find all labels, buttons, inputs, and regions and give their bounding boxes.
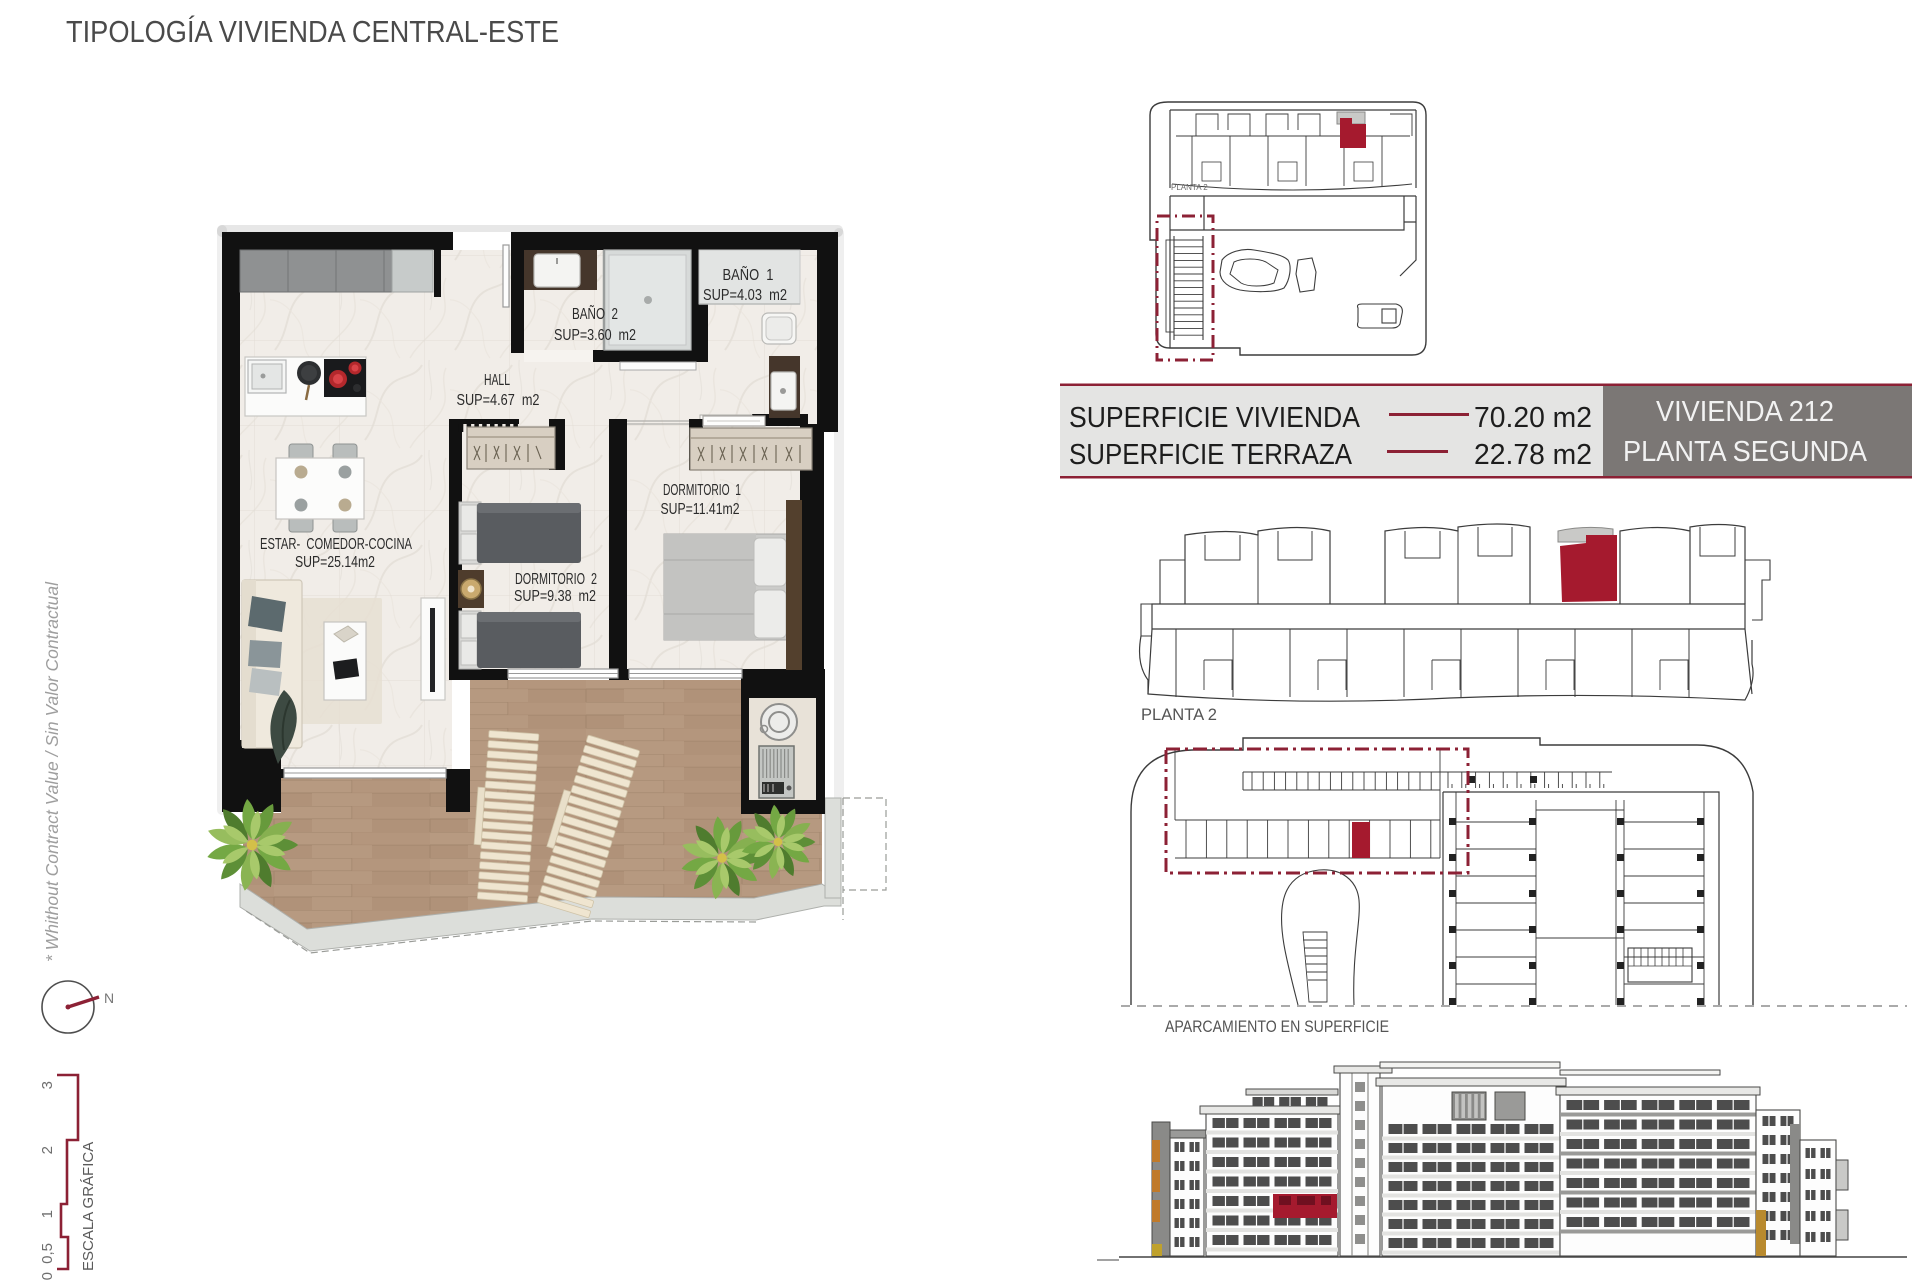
svg-text:2: 2 [39,1146,56,1154]
svg-text:SUPERFICIE TERRAZA: SUPERFICIE TERRAZA [1069,439,1353,471]
svg-text:70.20 m2: 70.20 m2 [1474,402,1592,434]
svg-text:0: 0 [39,1272,56,1280]
svg-text:3: 3 [39,1081,56,1089]
svg-text:BAÑO 2: BAÑO 2 [572,306,618,323]
svg-text:BAÑO 1: BAÑO 1 [723,267,774,284]
svg-text:SUP=11.41m2: SUP=11.41m2 [661,501,740,518]
svg-text:VIVIENDA 212: VIVIENDA 212 [1656,396,1834,428]
svg-text:* Whithout Contract Value / Si: * Whithout Contract Value / Sin Valor Co… [42,581,62,962]
svg-text:ESTAR- COMEDOR-COCINA: ESTAR- COMEDOR-COCINA [260,536,412,553]
svg-text:APARCAMIENTO EN SUPERFICIE: APARCAMIENTO EN SUPERFICIE [1165,1018,1389,1036]
svg-text:TIPOLOGÍA VIVIENDA CENTRAL-EST: TIPOLOGÍA VIVIENDA CENTRAL-ESTE [66,14,559,49]
svg-text:DORMITORIO 2: DORMITORIO 2 [515,571,597,588]
svg-text:SUP=4.03 m2: SUP=4.03 m2 [703,287,787,304]
svg-text:ESCALA GRÁFICA: ESCALA GRÁFICA [80,1142,97,1271]
svg-text:HALL: HALL [484,372,510,389]
svg-text:PLANTA 2: PLANTA 2 [1141,706,1217,724]
svg-text:DORMITORIO 1: DORMITORIO 1 [663,482,741,499]
svg-text:PLANTA SEGUNDA: PLANTA SEGUNDA [1623,436,1867,468]
svg-text:N: N [104,990,114,1006]
svg-text:PLANTA 2: PLANTA 2 [1171,183,1208,192]
svg-text:SUP=25.14m2: SUP=25.14m2 [295,554,375,571]
svg-text:SUP=4.67 m2: SUP=4.67 m2 [457,392,540,409]
svg-text:22.78 m2: 22.78 m2 [1474,439,1592,471]
svg-text:SUPERFICIE VIVIENDA: SUPERFICIE VIVIENDA [1069,402,1361,434]
svg-text:SUP=9.38 m2: SUP=9.38 m2 [514,588,596,605]
svg-text:0,5: 0,5 [39,1243,56,1264]
svg-text:1: 1 [39,1210,56,1218]
svg-text:SUP=3.60 m2: SUP=3.60 m2 [554,327,636,344]
